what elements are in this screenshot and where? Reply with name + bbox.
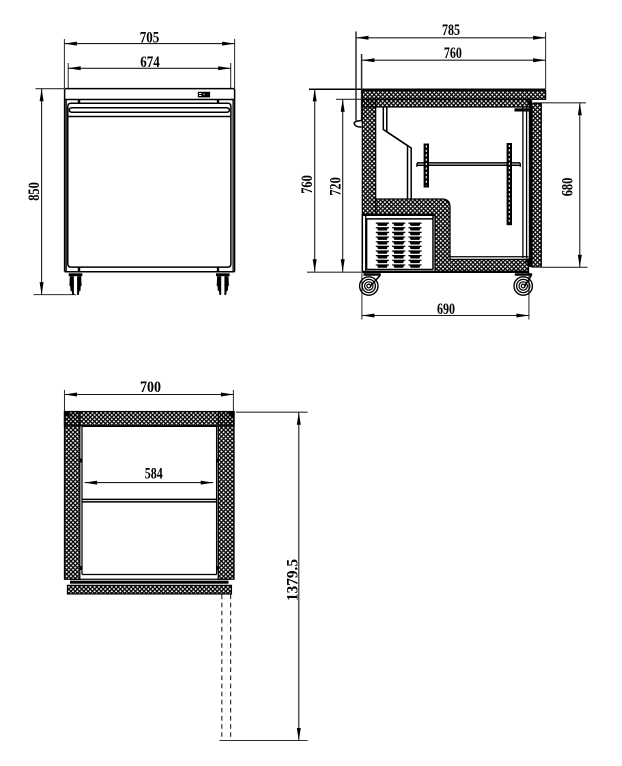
svg-text:850: 850 <box>26 182 43 201</box>
svg-text:785: 785 <box>442 22 460 39</box>
svg-text:680: 680 <box>560 178 577 197</box>
svg-text:760: 760 <box>299 175 316 194</box>
svg-text:705: 705 <box>140 29 160 46</box>
svg-text:700: 700 <box>140 379 161 396</box>
svg-text:690: 690 <box>437 301 455 318</box>
svg-text:720: 720 <box>328 177 345 196</box>
svg-text:760: 760 <box>444 45 462 62</box>
svg-text:584: 584 <box>145 466 163 483</box>
svg-text:1379.5: 1379.5 <box>284 559 301 601</box>
svg-text:674: 674 <box>140 54 160 71</box>
